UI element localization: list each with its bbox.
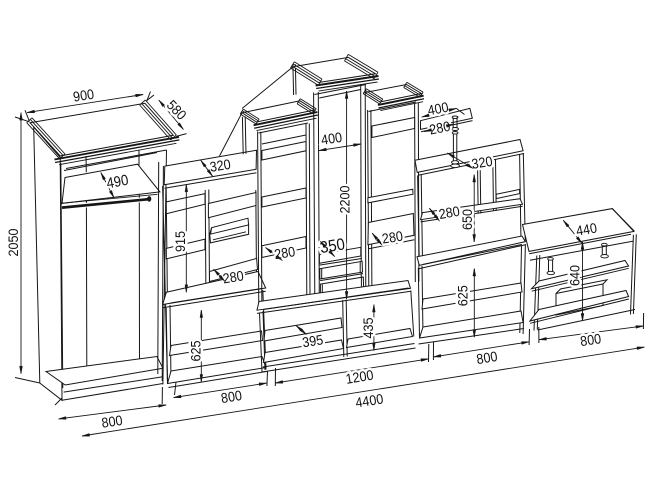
svg-text:280: 280	[381, 228, 404, 247]
svg-text:320: 320	[470, 153, 493, 172]
svg-text:800: 800	[220, 387, 243, 406]
svg-text:625: 625	[455, 285, 471, 306]
svg-text:280: 280	[222, 267, 245, 286]
svg-text:395: 395	[301, 331, 324, 350]
svg-text:280: 280	[273, 243, 296, 262]
svg-text:435: 435	[360, 317, 376, 338]
svg-text:800: 800	[100, 412, 123, 431]
svg-text:2200: 2200	[337, 185, 353, 213]
svg-text:640: 640	[566, 265, 582, 286]
svg-text:800: 800	[579, 330, 602, 349]
svg-text:625: 625	[188, 340, 204, 361]
svg-text:800: 800	[475, 348, 498, 367]
svg-text:900: 900	[72, 86, 95, 105]
svg-text:915: 915	[172, 231, 188, 252]
svg-text:650: 650	[459, 209, 475, 230]
svg-text:320: 320	[209, 156, 232, 175]
svg-text:2050: 2050	[5, 228, 21, 256]
svg-text:400: 400	[320, 129, 343, 148]
